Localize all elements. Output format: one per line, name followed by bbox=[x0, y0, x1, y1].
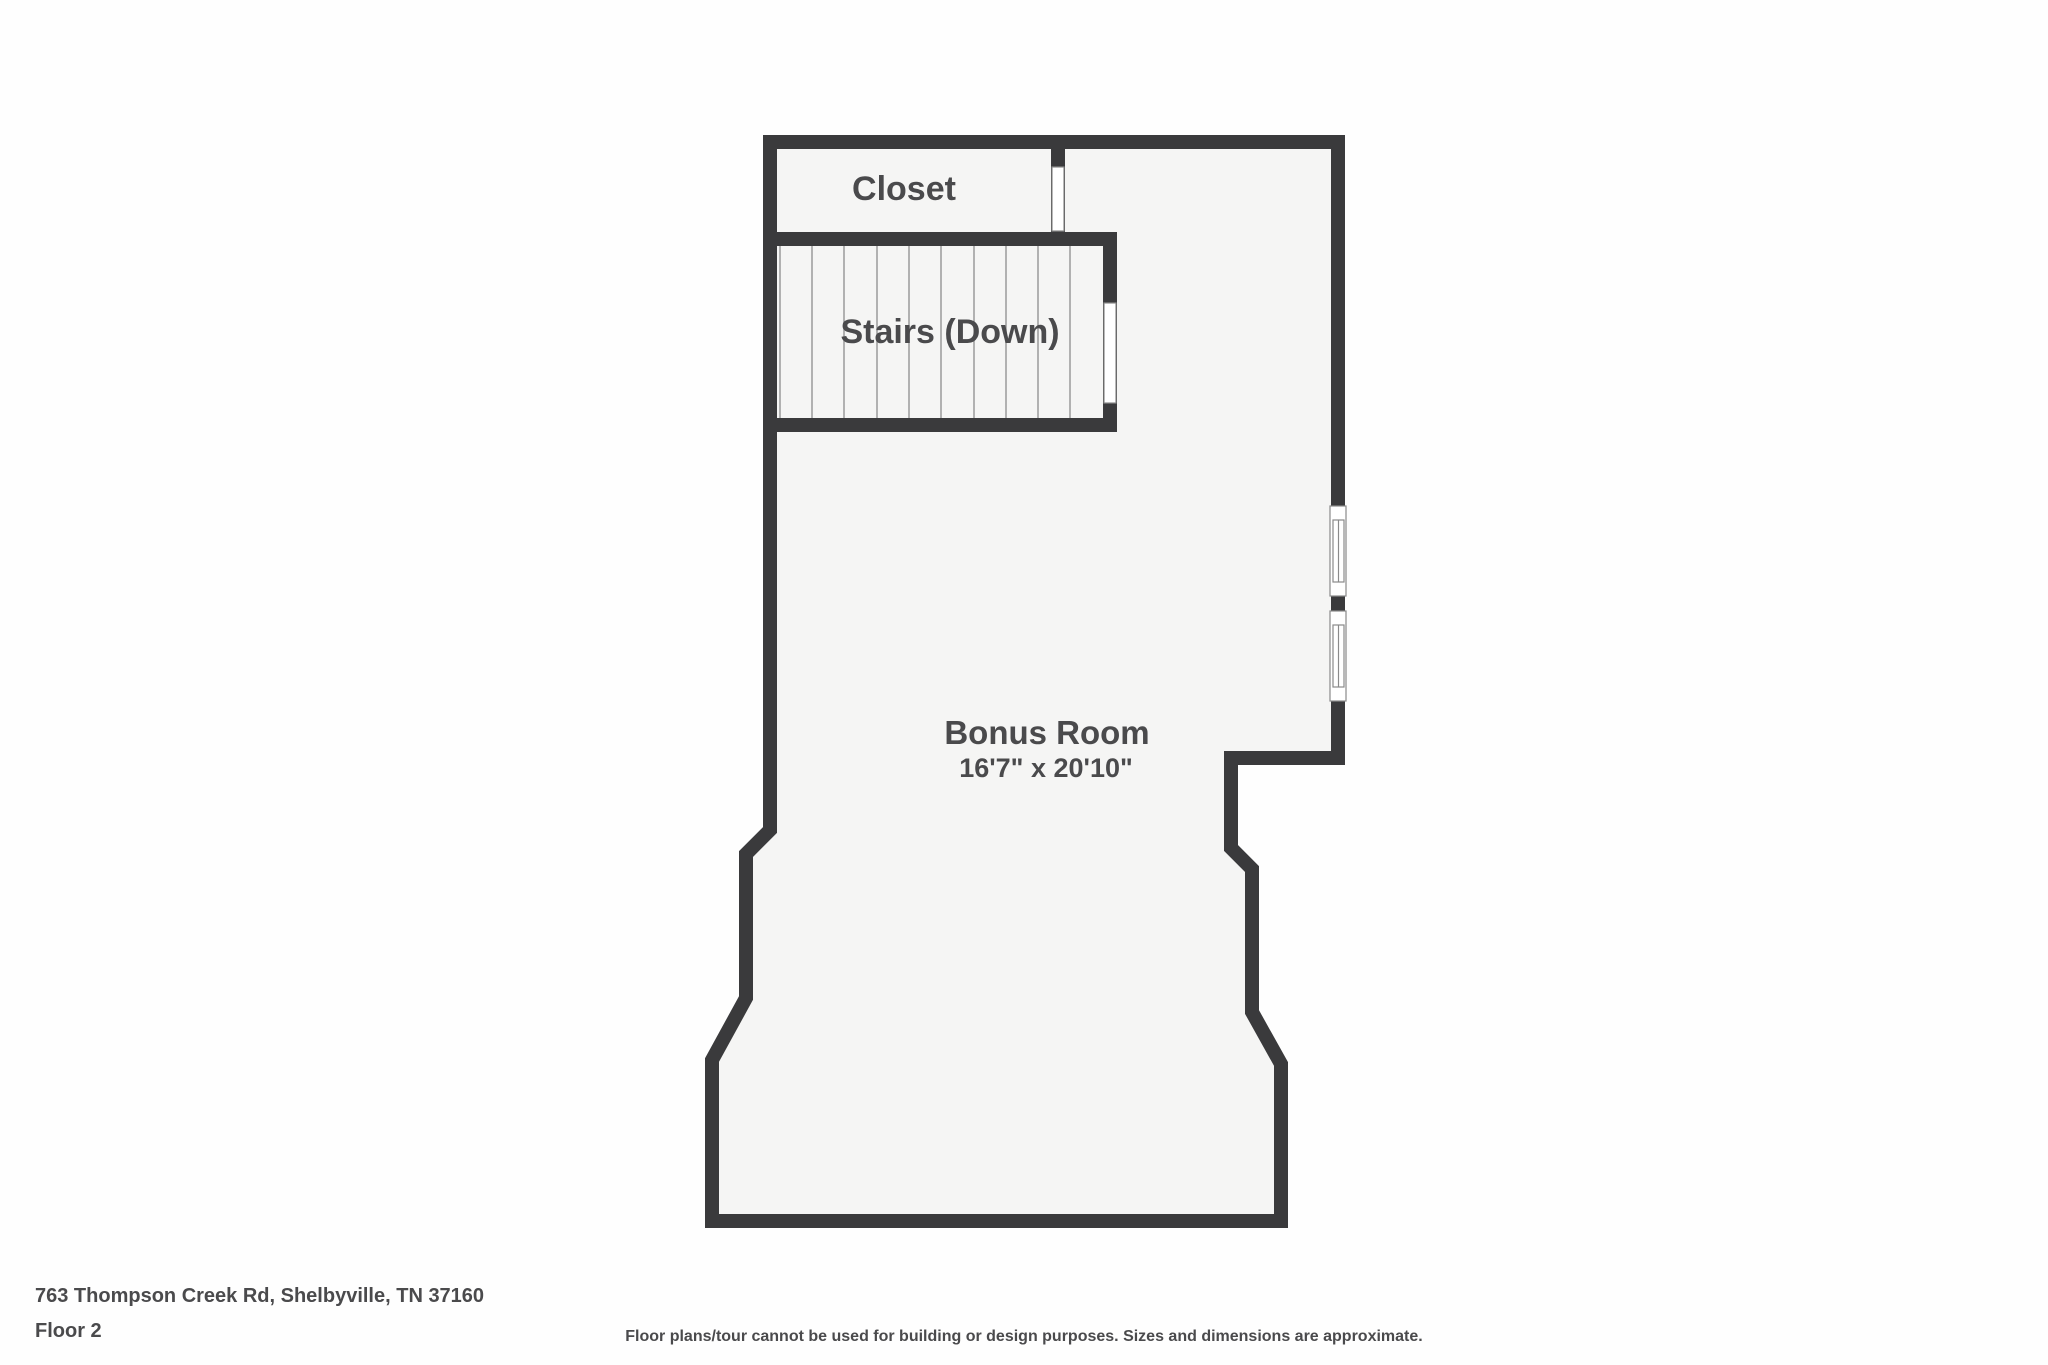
closet-bottom-wall bbox=[763, 232, 1117, 246]
bonus-room-outline bbox=[712, 142, 1338, 1221]
bonus-room-dimensions: 16'7" x 20'10" bbox=[959, 753, 1133, 783]
stairs-door-opening bbox=[1104, 303, 1116, 403]
stairs-label: Stairs (Down) bbox=[840, 313, 1059, 351]
floor-plan-canvas: Closet Stairs (Down) Bonus Room 16'7" x … bbox=[0, 0, 2048, 1365]
bonus-room-label: Bonus Room bbox=[944, 714, 1149, 751]
window-2 bbox=[1330, 611, 1346, 701]
closet-label: Closet bbox=[852, 170, 956, 208]
floor-plan-page: Closet Stairs (Down) Bonus Room 16'7" x … bbox=[0, 0, 2048, 1365]
window-1 bbox=[1330, 506, 1346, 596]
address-text: 763 Thompson Creek Rd, Shelbyville, TN 3… bbox=[35, 1285, 484, 1308]
closet-door-opening bbox=[1052, 167, 1064, 231]
disclaimer-text: Floor plans/tour cannot be used for buil… bbox=[0, 1328, 2048, 1346]
stairs-bottom-wall bbox=[763, 418, 1117, 432]
